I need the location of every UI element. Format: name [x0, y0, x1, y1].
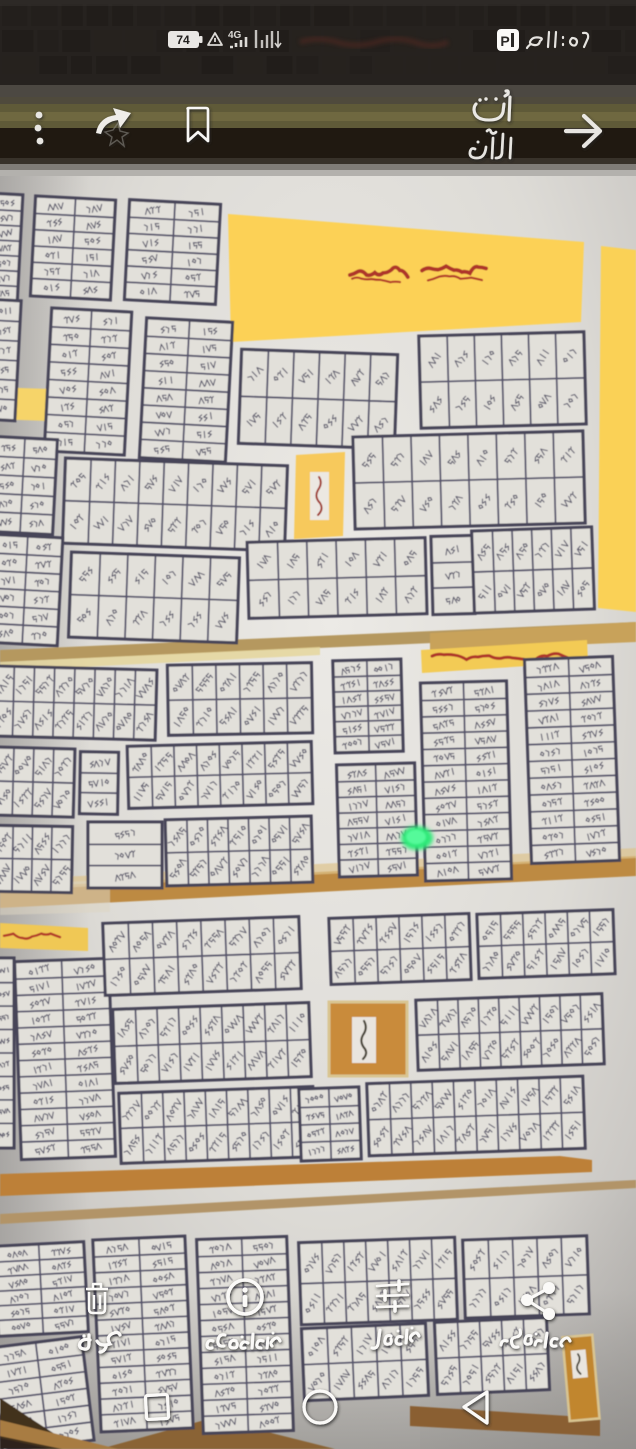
svg-text:74: 74: [176, 33, 190, 47]
svg-text:P: P: [500, 33, 509, 49]
svg-text:4G: 4G: [228, 30, 242, 41]
